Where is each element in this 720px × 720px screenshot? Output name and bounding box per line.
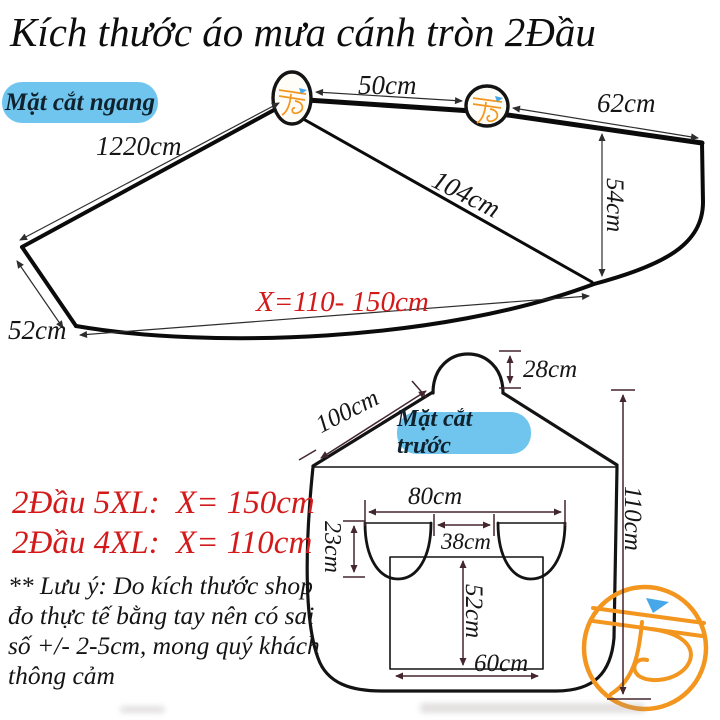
dim-label-110cm: 110cm [620, 486, 645, 551]
dim-label-60cm: 60cm [474, 651, 528, 676]
dim-label-23cm: 23cm [320, 521, 344, 573]
size-option-4xl: 2Đầu 4XL: X= 110cm [12, 527, 312, 560]
ts-logo-icon [584, 587, 706, 709]
hood [433, 354, 503, 393]
dim-label-62cm: 62cm [597, 90, 655, 117]
dim-label-50cm: 50cm [358, 72, 416, 99]
page-title: Kích thước áo mưa cánh tròn 2Đầu [10, 12, 596, 53]
size-option-5xl: 2Đầu 5XL: X= 150cm [12, 487, 315, 520]
dim-label-38cm: 38cm [441, 530, 491, 553]
measurement-note: ** Lưu ý: Do kích thước shop đo thực tế … [8, 571, 322, 691]
dim-label-80cm: 80cm [408, 484, 462, 509]
watermark-remnant [420, 703, 645, 713]
mirror-cover-left [273, 72, 311, 124]
dim-label-52cm-top: 52cm [8, 317, 66, 344]
dim-label-52cm-front: 52cm [461, 584, 486, 638]
dim-tick-100-bottom [299, 450, 316, 460]
dim-ticks-80 [365, 500, 565, 526]
size-chart-image: Kích thước áo mưa cánh tròn 2Đầu Mặt cắt… [0, 0, 720, 720]
dim-label-28cm: 28cm [523, 357, 577, 382]
mirror-pocket-left [365, 523, 431, 579]
front-view-badge: Mặt cắt trước [397, 412, 531, 454]
dim-line-1220 [20, 103, 279, 240]
top-view-badge: Mặt cắt ngang [2, 82, 158, 123]
mirror-pocket-right [498, 523, 565, 579]
watermark-remnant [120, 706, 165, 713]
dim-label-1220cm: 1220cm [96, 133, 181, 160]
dim-label-54cm: 54cm [602, 178, 627, 232]
mirror-cover-right [466, 86, 508, 126]
dim-label-x-range: X=110- 150cm [256, 288, 429, 317]
coat-left-edge [22, 104, 285, 247]
